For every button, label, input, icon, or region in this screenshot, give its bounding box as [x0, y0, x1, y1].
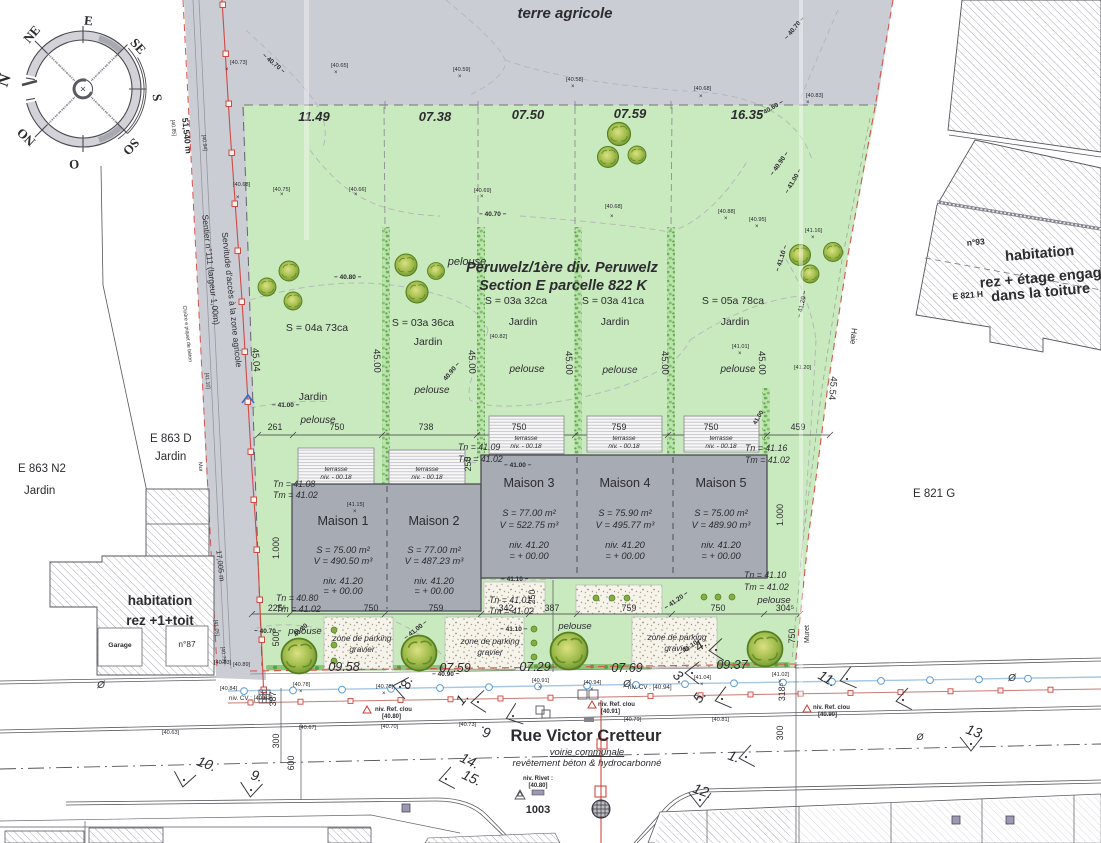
svg-text:n°87: n°87: [178, 639, 196, 649]
svg-text:V = 490.50 m³: V = 490.50 m³: [314, 556, 374, 566]
svg-text:Haie: Haie: [848, 328, 858, 346]
svg-text:[41.04]: [41.04]: [694, 675, 712, 681]
svg-text:×: ×: [353, 509, 357, 515]
svg-text:voirie communale: voirie communale: [550, 747, 624, 758]
svg-text:terrasse: terrasse: [324, 466, 348, 473]
svg-text:niv. CV : [40.94]: niv. CV : [40.94]: [628, 684, 672, 691]
svg-text:[40.88]: [40.88]: [718, 209, 736, 215]
svg-text:×: ×: [280, 192, 284, 198]
svg-text:Garage: Garage: [108, 642, 132, 649]
svg-text:Tn = 41.16: Tn = 41.16: [745, 443, 787, 453]
svg-text:habitation: habitation: [128, 593, 193, 608]
svg-text:250: 250: [527, 590, 537, 605]
svg-text:Maison 4: Maison 4: [599, 476, 650, 490]
svg-text:[40.78]: [40.78]: [293, 682, 311, 688]
svg-text:[40.73]: [40.73]: [459, 722, 477, 728]
svg-text:Tm = 41.02: Tm = 41.02: [744, 582, 789, 592]
svg-text:E: E: [83, 13, 93, 29]
svg-text:[40.59]: [40.59]: [453, 67, 471, 73]
svg-text:750: 750: [330, 422, 345, 432]
svg-text:S = 04a 73ca: S = 04a 73ca: [286, 322, 348, 334]
svg-text:×: ×: [538, 685, 542, 691]
svg-text:45.00: 45.00: [659, 351, 671, 375]
svg-text:Maison 3: Maison 3: [503, 476, 554, 490]
svg-text:1003: 1003: [526, 804, 550, 816]
svg-text:E 863 N2: E 863 N2: [18, 463, 66, 475]
svg-text:gravier: gravier: [477, 647, 504, 657]
svg-text:[40.79]: [40.79]: [624, 717, 642, 723]
svg-text:[40.58]: [40.58]: [566, 77, 584, 83]
svg-text:terrasse: terrasse: [514, 435, 538, 442]
svg-text:S: S: [150, 93, 166, 102]
svg-text:×: ×: [806, 100, 810, 106]
svg-text:Tm = 41.02: Tm = 41.02: [745, 455, 790, 465]
svg-text:759: 759: [612, 422, 627, 432]
svg-text:[40.95]: [40.95]: [749, 217, 767, 223]
svg-text:niv. 41.20: niv. 41.20: [509, 540, 549, 550]
svg-text:= + 00.00: = + 00.00: [414, 586, 454, 596]
svg-text:niv. Ref. clou: niv. Ref. clou: [598, 702, 635, 708]
svg-text:750: 750: [704, 422, 719, 432]
svg-text:×: ×: [236, 195, 240, 201]
svg-text:rez +1+toit: rez +1+toit: [126, 613, 194, 628]
svg-text:×: ×: [738, 351, 742, 357]
svg-text:[40.91]: [40.91]: [532, 678, 550, 684]
svg-text:S = 75.90 m²: S = 75.90 m²: [598, 508, 652, 518]
svg-text:niv. Ref. clou: niv. Ref. clou: [375, 707, 412, 713]
svg-text:[40.80]: [40.80]: [382, 714, 401, 720]
svg-text:Tn = 40.80: Tn = 40.80: [276, 593, 318, 603]
svg-text:Peruwelz/1ère div. Peruwelz: Peruwelz/1ère div. Peruwelz: [466, 260, 659, 276]
svg-text:Jardin: Jardin: [509, 316, 538, 328]
svg-text:[40.66]: [40.66]: [349, 187, 367, 193]
svg-text:Maison 2: Maison 2: [408, 514, 459, 528]
svg-text:[40.89]: [40.89]: [233, 662, 251, 668]
svg-text:759: 759: [622, 603, 637, 613]
svg-text:Section E parcelle 822 K: Section E parcelle 822 K: [479, 278, 648, 294]
svg-text:S = 77.00 m²: S = 77.00 m²: [407, 545, 461, 555]
svg-text:= + 00.00: = + 00.00: [701, 551, 741, 561]
svg-text:750: 750: [711, 603, 726, 613]
svg-text:S = 03a 32ca: S = 03a 32ca: [485, 295, 547, 307]
svg-text:S = 03a 36ca: S = 03a 36ca: [392, 317, 454, 329]
svg-text:gravier: gravier: [349, 644, 376, 654]
svg-text:×: ×: [590, 687, 594, 693]
svg-text:[40.91]: [40.91]: [601, 709, 620, 715]
svg-text:E 821 G: E 821 G: [913, 488, 955, 500]
svg-text:niv. 41.20: niv. 41.20: [323, 576, 363, 586]
svg-text:×: ×: [610, 214, 614, 220]
svg-text:Maison 1: Maison 1: [317, 514, 368, 528]
svg-text:×: ×: [225, 67, 229, 73]
svg-text:terrasse: terrasse: [709, 435, 733, 442]
svg-text:= + 00.00: = + 00.00: [323, 586, 363, 596]
svg-text:Maison 5: Maison 5: [695, 476, 746, 490]
svg-text:V = 487.23 m³: V = 487.23 m³: [405, 556, 465, 566]
svg-text:pelouse: pelouse: [719, 364, 755, 375]
svg-text:[40.94]: [40.94]: [584, 680, 602, 686]
svg-text:×: ×: [458, 74, 462, 80]
svg-text:[41.01]: [41.01]: [732, 344, 750, 350]
svg-text:300: 300: [271, 734, 281, 749]
svg-text:[40.82]: [40.82]: [490, 334, 508, 340]
svg-text:pelouse: pelouse: [601, 365, 637, 376]
svg-text:niv. Ref. clou: niv. Ref. clou: [813, 705, 850, 711]
svg-text:terrasse: terrasse: [612, 435, 636, 442]
svg-text:S = 75.00 m²: S = 75.00 m²: [694, 508, 748, 518]
svg-text:07.29: 07.29: [519, 660, 550, 674]
svg-text:niv. 41.20: niv. 41.20: [701, 540, 741, 550]
svg-text:zone de parking: zone de parking: [331, 633, 391, 643]
svg-text:[40.83]: [40.83]: [806, 93, 824, 99]
svg-text:09.37: 09.37: [716, 658, 748, 672]
svg-text:250: 250: [463, 457, 473, 472]
svg-text:= + 00.00: = + 00.00: [509, 551, 549, 561]
svg-text:387: 387: [545, 603, 560, 613]
svg-text:×: ×: [724, 216, 728, 222]
svg-text:Tn = 41.10: Tn = 41.10: [744, 570, 786, 580]
svg-text:45.00: 45.00: [371, 349, 383, 373]
svg-text:×: ×: [778, 679, 782, 685]
svg-text:759: 759: [429, 603, 444, 613]
svg-text:niv. - 00.18: niv. - 00.18: [320, 474, 352, 481]
svg-text:45.00: 45.00: [756, 351, 768, 375]
svg-text:niv. CV : [40.63]: niv. CV : [40.63]: [229, 695, 273, 702]
svg-text:[40.68]: [40.68]: [605, 204, 623, 210]
svg-text:[41.16]: [41.16]: [805, 228, 823, 234]
svg-text:V = 495.77 m³: V = 495.77 m³: [596, 520, 656, 530]
svg-text:E 863 D: E 863 D: [150, 433, 192, 445]
svg-text:pelouse: pelouse: [557, 621, 591, 632]
svg-text:[40.68]: [40.68]: [233, 182, 251, 188]
svg-text:Ø: Ø: [622, 679, 632, 690]
svg-text:terrasse: terrasse: [415, 466, 439, 473]
svg-text:S = 03a 41ca: S = 03a 41ca: [582, 295, 644, 307]
svg-text:07.50: 07.50: [512, 107, 545, 122]
svg-text:×: ×: [755, 224, 759, 230]
svg-text:niv. - 00.18: niv. - 00.18: [705, 443, 737, 450]
svg-text:Tm = 41.02: Tm = 41.02: [276, 604, 321, 614]
svg-text:45.54: 45.54: [826, 376, 839, 401]
svg-text:×: ×: [354, 192, 358, 198]
svg-text:= + 00.00: = + 00.00: [605, 551, 645, 561]
svg-text:zone de parking: zone de parking: [459, 636, 519, 646]
svg-text:[40.63]: [40.63]: [162, 730, 180, 736]
svg-text:V = 522.75 m³: V = 522.75 m³: [500, 520, 560, 530]
svg-text:[40.65]: [40.65]: [331, 63, 349, 69]
svg-text:V = 489.90 m³: V = 489.90 m³: [692, 520, 752, 530]
svg-text:S = 77.00 m²: S = 77.00 m²: [502, 508, 556, 518]
svg-text:pelouse: pelouse: [756, 595, 790, 606]
svg-text:750: 750: [787, 629, 797, 644]
svg-text:1.000: 1.000: [775, 504, 785, 526]
svg-text:O: O: [69, 157, 80, 173]
svg-text:×: ×: [480, 194, 484, 200]
svg-text:[41.02]: [41.02]: [772, 672, 790, 678]
svg-text:[40.68]: [40.68]: [694, 86, 712, 92]
svg-text:09.58: 09.58: [328, 660, 359, 674]
svg-text:07.59: 07.59: [614, 106, 647, 121]
svg-text:niv. - 00.18: niv. - 00.18: [411, 474, 443, 481]
svg-text:Ø: Ø: [1007, 673, 1017, 684]
svg-text:×: ×: [699, 94, 703, 100]
svg-text:− 41.00 −: − 41.00 −: [504, 462, 532, 469]
svg-text:×: ×: [811, 235, 815, 241]
svg-text:Jardin: Jardin: [601, 316, 630, 328]
svg-text:×: ×: [571, 84, 575, 90]
svg-text:750: 750: [512, 422, 527, 432]
svg-text:[40.73]: [40.73]: [230, 60, 248, 66]
svg-text:niv. 41.20: niv. 41.20: [414, 576, 454, 586]
svg-text:11.49: 11.49: [298, 109, 330, 124]
svg-text:Jardin: Jardin: [24, 485, 55, 497]
svg-text:revêtement béton & hydrocarbon: revêtement béton & hydrocarbonné: [513, 758, 662, 769]
svg-text:pelouse: pelouse: [413, 385, 449, 396]
svg-text:Jardin: Jardin: [414, 336, 443, 348]
svg-text:Tm = 41.02: Tm = 41.02: [273, 490, 318, 500]
svg-text:Tn = 41.08: Tn = 41.08: [273, 479, 315, 489]
svg-text:Tm = 41.02: Tm = 41.02: [489, 606, 534, 616]
svg-text:[40.81]: [40.81]: [712, 717, 730, 723]
svg-text:×: ×: [382, 691, 386, 697]
svg-text:Mur: Mur: [197, 462, 204, 472]
svg-text:[40.90]: [40.90]: [818, 712, 837, 718]
svg-text:Jardin: Jardin: [299, 391, 328, 403]
svg-text:S = 05a 78ca: S = 05a 78ca: [702, 295, 764, 307]
svg-text:niv. 41.20: niv. 41.20: [605, 540, 645, 550]
svg-text:terre agricole: terre agricole: [517, 5, 612, 22]
svg-text:1.000: 1.000: [271, 537, 281, 559]
svg-text:07.38: 07.38: [419, 109, 452, 124]
svg-text:Muret: Muret: [804, 625, 811, 643]
svg-text:300: 300: [775, 726, 785, 741]
svg-text:750: 750: [364, 603, 379, 613]
svg-text:− 41.00 −: − 41.00 −: [272, 402, 300, 409]
svg-text:[40.70]: [40.70]: [381, 724, 399, 730]
svg-text:45.00: 45.00: [563, 351, 575, 375]
svg-text:×: ×: [700, 682, 704, 688]
svg-text:[40.67]: [40.67]: [299, 725, 317, 731]
svg-text:− 41.10 −: − 41.10 −: [500, 626, 528, 633]
svg-text:318⁵: 318⁵: [777, 682, 787, 701]
svg-text:Tn = 41.01: Tn = 41.01: [489, 595, 531, 605]
svg-text:Ø: Ø: [96, 680, 106, 691]
svg-text:niv. - 00.18: niv. - 00.18: [608, 443, 640, 450]
svg-text:600: 600: [286, 756, 296, 771]
svg-text:pelouse: pelouse: [508, 364, 544, 375]
svg-text:[40.84]: [40.84]: [220, 686, 238, 692]
svg-text:261: 261: [268, 422, 283, 432]
svg-text:− 40.80 −: − 40.80 −: [334, 274, 362, 281]
svg-text:×: ×: [299, 689, 303, 695]
svg-text:45.04: 45.04: [249, 348, 262, 372]
svg-text:niv. Rivet :: niv. Rivet :: [523, 776, 553, 782]
svg-text:Ø: Ø: [915, 732, 924, 742]
svg-text:− 41.10 −: − 41.10 −: [501, 576, 529, 583]
svg-text:[40.83]: [40.83]: [214, 660, 232, 666]
svg-text:[40.78]: [40.78]: [376, 684, 394, 690]
svg-text:niv. - 00.18: niv. - 00.18: [510, 443, 542, 450]
svg-text:07.69: 07.69: [611, 661, 642, 675]
svg-text:S = 75.00 m²: S = 75.00 m²: [316, 545, 370, 555]
svg-text:Tn = 41.09: Tn = 41.09: [458, 442, 500, 452]
svg-text:Jardin: Jardin: [155, 451, 186, 463]
svg-text:Jardin: Jardin: [721, 316, 750, 328]
svg-text:n°93: n°93: [966, 236, 985, 248]
svg-text:[41.15]: [41.15]: [347, 502, 365, 508]
svg-text:− 40.90 ~: − 40.90 ~: [432, 671, 460, 678]
svg-text:45.00: 45.00: [466, 350, 478, 374]
svg-text:~ 40.70 −: ~ 40.70 −: [254, 628, 282, 635]
svg-text:459: 459: [791, 422, 806, 432]
svg-text:738: 738: [419, 422, 434, 432]
svg-text:[40.80]: [40.80]: [528, 783, 547, 789]
svg-text:pelouse: pelouse: [447, 256, 487, 268]
svg-text:×: ×: [334, 70, 338, 76]
svg-text:− 40.70 −: − 40.70 −: [479, 211, 507, 218]
svg-text:Rue Victor Cretteur: Rue Victor Cretteur: [511, 727, 663, 745]
